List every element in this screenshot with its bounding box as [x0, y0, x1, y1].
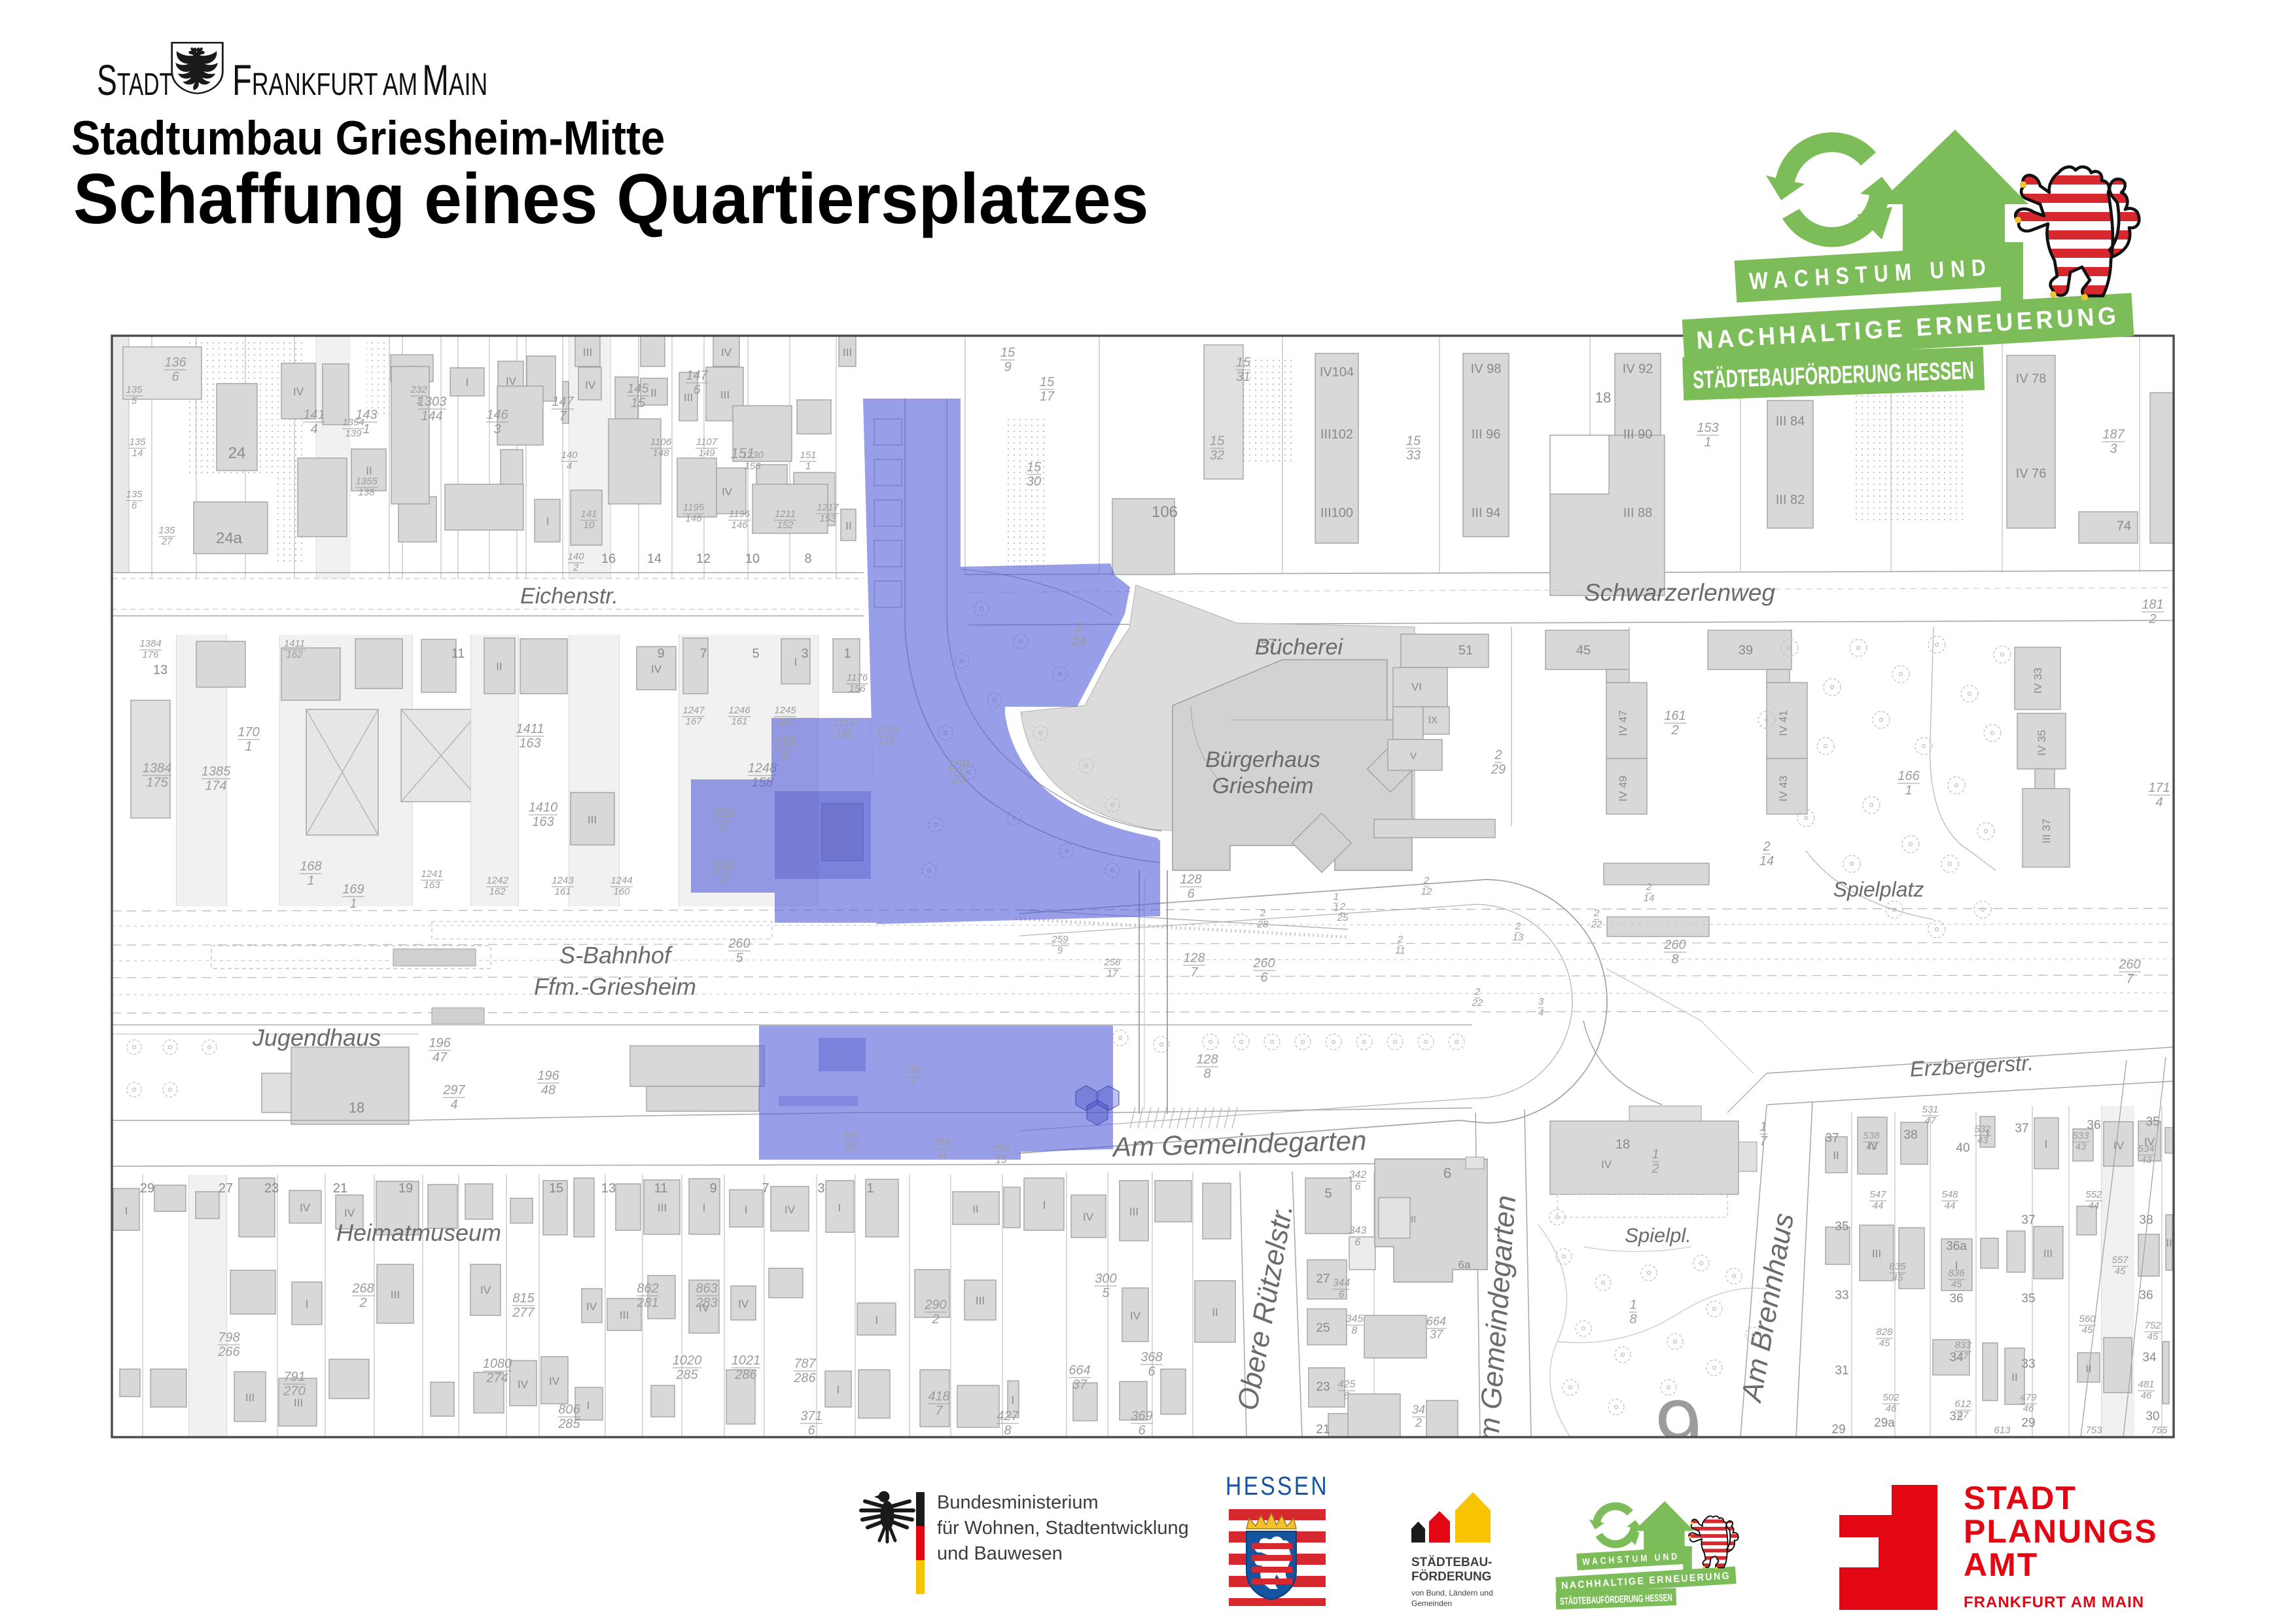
svg-text:für Wohnen, Stadtentwicklung: für Wohnen, Stadtentwicklung — [937, 1518, 1189, 1539]
svg-text:Bundesministerium: Bundesministerium — [937, 1492, 1099, 1513]
svg-text:AMT: AMT — [1964, 1546, 2038, 1583]
svg-text:Gemeinden: Gemeinden — [1411, 1599, 1452, 1608]
svg-text:STÄDTEBAU-: STÄDTEBAU- — [1411, 1556, 1492, 1569]
svg-text:von Bund, Ländern und: von Bund, Ländern und — [1411, 1588, 1493, 1597]
svg-text:STADT: STADT — [1964, 1480, 2077, 1516]
svg-text:FRANKFURT AM MAIN: FRANKFURT AM MAIN — [1964, 1594, 2144, 1611]
svg-text:FÖRDERUNG: FÖRDERUNG — [1411, 1570, 1491, 1584]
svg-text:PLANUNGS: PLANUNGS — [1964, 1513, 2158, 1550]
svg-text:HESSEN: HESSEN — [1226, 1472, 1329, 1501]
svg-text:und Bauwesen: und Bauwesen — [937, 1543, 1063, 1564]
